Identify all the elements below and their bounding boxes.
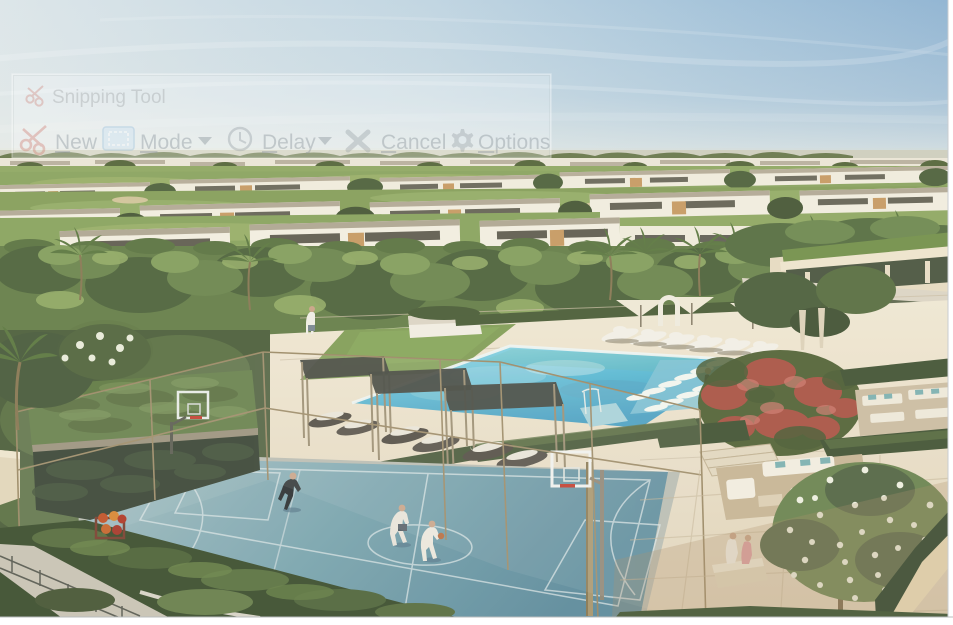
svg-text:Snipping Tool: Snipping Tool (52, 87, 166, 108)
